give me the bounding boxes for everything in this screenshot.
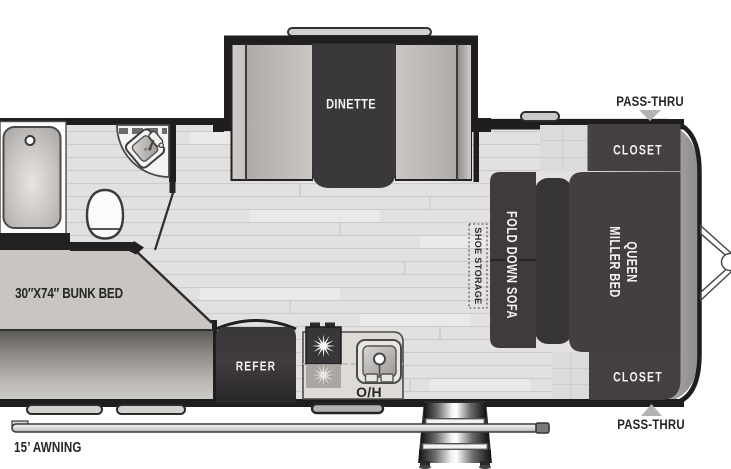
svg-text:15’ AWNING: 15’ AWNING (14, 439, 82, 456)
svg-text:MILLER BED: MILLER BED (607, 226, 624, 298)
svg-text:CLOSET: CLOSET (613, 142, 663, 158)
svg-text:30″X74″ BUNK BED: 30″X74″ BUNK BED (15, 285, 123, 301)
svg-text:REFER: REFER (236, 361, 276, 374)
svg-text:O/H: O/H (356, 384, 382, 400)
svg-text:QUEEN: QUEEN (624, 241, 641, 282)
svg-text:DINETTE: DINETTE (326, 96, 376, 111)
svg-text:CLOSET: CLOSET (613, 369, 663, 385)
svg-text:FOLD DOWN SOFA: FOLD DOWN SOFA (504, 211, 521, 319)
svg-text:PASS-THRU: PASS-THRU (617, 417, 685, 432)
svg-text:SHOE STORAGE: SHOE STORAGE (473, 227, 483, 304)
svg-text:PASS-THRU: PASS-THRU (616, 94, 684, 109)
